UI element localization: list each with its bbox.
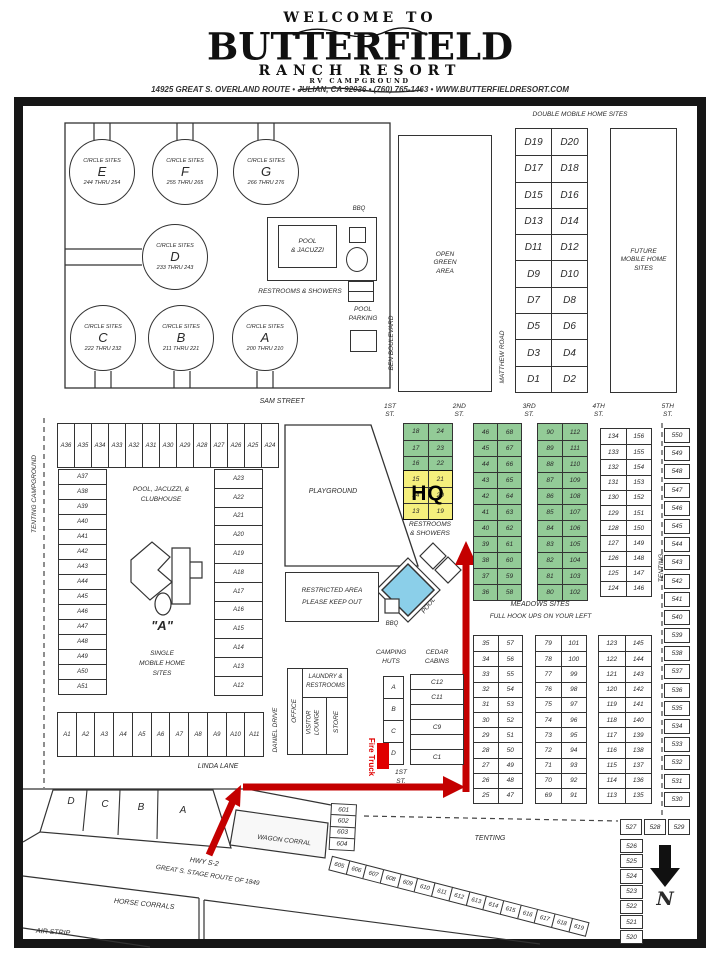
camping-hut: C [383, 720, 404, 743]
tent-site: 543 [664, 555, 690, 570]
tent-site: 549 [664, 446, 690, 461]
north-arrow-head [650, 868, 680, 887]
site-number: 147 [626, 567, 652, 581]
site-number: 126 [601, 552, 626, 566]
a-site: A9 [207, 712, 227, 757]
site-number: 94 [561, 743, 587, 757]
site-number: 123 [599, 636, 625, 651]
site-number: 145 [625, 636, 652, 651]
camping-hut: A [383, 676, 404, 699]
bbq-lower-label: BBQ [381, 620, 403, 629]
tent-site: 532 [664, 755, 690, 770]
d-site-cell: D1 [516, 367, 551, 392]
site-number: 127 [601, 536, 626, 550]
site-row: 3961 [474, 536, 521, 552]
daniel-drive-label: DANIEL DRIVE [271, 700, 281, 760]
pool-jacuzzi-label-2: & JACUZZI [291, 247, 324, 256]
a-site: A43 [58, 559, 107, 575]
site-number: 28 [474, 743, 498, 757]
d-site-cell: D8 [551, 288, 587, 313]
site-row: 3254 [474, 682, 522, 697]
site-number: 150 [626, 521, 652, 535]
site-number: 70 [536, 774, 561, 788]
d-site-cell: D4 [551, 340, 587, 365]
a-site: A32 [125, 423, 143, 468]
site-row: 2648 [474, 773, 522, 788]
d-site-cell: D2 [551, 367, 587, 392]
d-site-row: D9D10 [516, 260, 587, 286]
site-number: 88 [538, 457, 562, 472]
first-street-lower-label-1: 1ST [390, 769, 412, 778]
site-row: 3860 [474, 552, 521, 568]
tent-site: 521 [620, 915, 643, 929]
site-row: 133155 [601, 444, 651, 459]
site-number: 103 [562, 569, 587, 584]
site-number: 53 [498, 698, 523, 712]
camping-huts-label-2: HUTS [370, 658, 412, 667]
camping-huts-label-1: CAMPING [370, 649, 412, 658]
street-labels-row: 1STST.2NDST.3RDST.4THST.5THST. [384, 403, 674, 419]
site-row: 1723 [404, 440, 452, 456]
street-label: 3RDST. [523, 403, 536, 419]
site-number: 56 [498, 652, 523, 666]
site-row: 2850 [474, 742, 522, 757]
d-site-row: D19D20 [516, 129, 587, 155]
a-site: A13 [214, 657, 263, 677]
a-site: A42 [58, 544, 107, 560]
site-row: 7496 [536, 712, 586, 727]
pool-parking-lot [350, 330, 377, 352]
d-site-cell: D15 [516, 183, 551, 208]
site-row: 121143 [599, 666, 651, 681]
site-number: 40 [474, 521, 497, 536]
pool-parking-label-2: PARKING [346, 315, 380, 324]
site-number: 27 [474, 759, 498, 773]
site-number: 39 [474, 537, 497, 552]
site-number: 140 [625, 713, 652, 727]
site-number: 106 [562, 521, 587, 536]
site-number: 74 [536, 713, 561, 727]
site-number: 13 [404, 504, 428, 519]
campground-map: CIRCLE SITES E 244 THRU 254 CIRCLE SITES… [0, 0, 720, 960]
site-row: 130152 [601, 490, 651, 505]
a-site: A29 [176, 423, 194, 468]
d-site-row: D7D8 [516, 287, 587, 313]
tent-site: 522 [620, 900, 643, 914]
d-site-cell: D12 [551, 235, 587, 260]
site-number: 65 [497, 473, 521, 488]
site-number: 38 [474, 553, 497, 568]
site-number: 49 [498, 759, 523, 773]
a-site: A17 [214, 582, 263, 602]
hq-label: HQ [403, 482, 453, 506]
site-number: 107 [562, 505, 587, 520]
d-site-cell: D13 [516, 209, 551, 234]
circle-range: 244 THRU 254 [84, 180, 121, 186]
site-number: 61 [497, 537, 521, 552]
site-row: 129151 [601, 505, 651, 520]
site-number: 30 [474, 713, 498, 727]
site-row: 88110 [538, 456, 587, 472]
a-site: A38 [58, 484, 107, 500]
site-number: 46 [474, 424, 497, 440]
site-row: 85107 [538, 504, 587, 520]
future-line: SITES [634, 265, 653, 274]
circle-site-d: CIRCLE SITES D 233 THRU 243 [142, 224, 208, 290]
site-number: 60 [497, 553, 521, 568]
site-number: 75 [536, 698, 561, 712]
site-row: 4365 [474, 472, 521, 488]
cedar-cabin: C9 [410, 719, 464, 735]
pool-parking-stall [348, 291, 374, 302]
a-site: A4 [113, 712, 133, 757]
site-number: 55 [498, 667, 523, 681]
site-number: 135 [625, 789, 652, 803]
a-site: A12 [214, 676, 263, 696]
d-site-row: D13D14 [516, 208, 587, 234]
site-number: 79 [536, 636, 561, 651]
hq-green-section: 182417231622 [404, 424, 452, 471]
d-site-cell: D9 [516, 261, 551, 286]
tent-site: 536 [664, 683, 690, 698]
a-sites-left-column: A37A38A39A40A41A42A43A44A45A46A47A48A49A… [58, 470, 107, 695]
a-site: A30 [159, 423, 177, 468]
circle-letter: F [181, 165, 189, 179]
circle-site-e: CIRCLE SITES E 244 THRU 254 [69, 139, 135, 205]
street-label: 4THST. [593, 403, 605, 419]
site-row: 89111 [538, 440, 587, 456]
site-row: 113135 [599, 788, 651, 803]
site-number: 47 [498, 789, 523, 803]
fourth-street-sites-table: 1341561331551321541311531301521291511281… [600, 428, 652, 597]
site-number: 82 [538, 553, 562, 568]
site-row: 4567 [474, 440, 521, 456]
tent-site: 538 [664, 646, 690, 661]
fire-truck-label: Fire Truck [366, 732, 376, 782]
site-number: 97 [561, 698, 587, 712]
site-row: 1824 [404, 424, 452, 440]
tent-site: 540 [664, 610, 690, 625]
a-site: A25 [244, 423, 262, 468]
tent-site: 544 [664, 537, 690, 552]
d-site-row: D3D4 [516, 339, 587, 365]
site-number: 18 [404, 424, 428, 440]
a-site: A24 [261, 423, 279, 468]
d-site-row: D5D6 [516, 313, 587, 339]
site-number: 155 [626, 445, 652, 459]
site-row: 119141 [599, 697, 651, 712]
circle-range: 200 THRU 210 [247, 346, 284, 352]
circle-range: 233 THRU 243 [157, 265, 194, 271]
a-site: A41 [58, 529, 107, 545]
a-site: A1 [57, 712, 77, 757]
site-number: 108 [562, 489, 587, 504]
tent-site: 537 [664, 664, 690, 679]
a-site: A5 [132, 712, 152, 757]
cedar-cabins-column: C12C11C9C1 [410, 675, 464, 765]
site-row: 2951 [474, 727, 522, 742]
cedar-cabins-label-2: CABINS [415, 658, 459, 667]
corner-sites-column: 526525524523522521520 [620, 839, 643, 944]
site-number: 62 [497, 521, 521, 536]
site-number: 51 [498, 728, 523, 742]
site-number: 63 [497, 505, 521, 520]
site-number: 66 [497, 457, 521, 472]
open-green-line: GREEN [433, 259, 456, 268]
site-number: 41 [474, 505, 497, 520]
site-number: 152 [626, 491, 652, 505]
a-site: A6 [151, 712, 171, 757]
third-street-sites-table: 9011289111881108710986108851078410683105… [537, 423, 588, 601]
meadows-table-3: 1231451221441211431201421191411181401171… [598, 635, 652, 804]
pool-jacuzzi-building: POOL & JACUZZI [278, 225, 337, 268]
site-row: 118140 [599, 712, 651, 727]
site-row: 3759 [474, 568, 521, 584]
site-number: 32 [474, 683, 498, 697]
tent-site: 535 [664, 701, 690, 716]
tent-site: 524 [620, 869, 643, 883]
meadows-table-1: 3557345633553254315330522951285027492648… [473, 635, 523, 804]
cedar-cabins-label-1: CEDAR [415, 649, 459, 658]
a-site: A46 [58, 604, 107, 620]
site-row: 7698 [536, 682, 586, 697]
tent-site: 520 [620, 930, 643, 944]
tenting-sites-column: 5505495485475465455445435425415405395385… [664, 428, 690, 807]
a-site: A50 [58, 664, 107, 680]
a-site: A21 [214, 507, 263, 527]
site-number: 141 [625, 698, 652, 712]
site-row: 116138 [599, 742, 651, 757]
site-number: 100 [561, 652, 587, 666]
site-row: 2547 [474, 788, 522, 803]
site-row: 126148 [601, 551, 651, 566]
d-site-cell: D3 [516, 340, 551, 365]
tent-site: 539 [664, 628, 690, 643]
site-number: 31 [474, 698, 498, 712]
site-number: 58 [497, 585, 521, 600]
circle-site-b: CIRCLE SITES B 211 THRU 221 [148, 305, 214, 371]
playground-label: PLAYGROUND [300, 488, 366, 497]
site-row: 128150 [601, 520, 651, 535]
fire-truck-marker [377, 743, 389, 769]
site-row: 4163 [474, 504, 521, 520]
site-number: 156 [626, 429, 652, 444]
site-row: 114136 [599, 773, 651, 788]
a-site: A23 [214, 469, 263, 489]
tent-site: 547 [664, 483, 690, 498]
site-number: 33 [474, 667, 498, 681]
visitor-line: VISITOR [307, 711, 315, 735]
site-number: 68 [497, 424, 521, 440]
site-row: 4668 [474, 424, 521, 440]
a-site: A45 [58, 589, 107, 605]
tenting-bottom-label: TENTING [468, 835, 512, 844]
pool-jacuzzi-clubhouse-label-1: POOL, JACUZZI, & [107, 486, 215, 495]
circle-letter: A [261, 331, 270, 345]
site-number: 130 [601, 491, 626, 505]
pool-parking-label-1: POOL [346, 306, 380, 315]
site-row: 2749 [474, 758, 522, 773]
site-number: 148 [626, 552, 652, 566]
site-row: 120142 [599, 682, 651, 697]
site-row: 80102 [538, 584, 587, 600]
site-number: 131 [601, 476, 626, 490]
circle-range: 211 THRU 221 [163, 346, 199, 352]
site-row: 122144 [599, 651, 651, 666]
site-number: 87 [538, 473, 562, 488]
site-number: 84 [538, 521, 562, 536]
site-row: 78100 [536, 651, 586, 666]
site-row: 79101 [536, 636, 586, 651]
site-number: 89 [538, 441, 562, 456]
d-site-cell: D17 [516, 156, 551, 181]
wagon-site: 604 [329, 837, 356, 851]
site-row: 3456 [474, 651, 522, 666]
site-number: 37 [474, 569, 497, 584]
site-number: 81 [538, 569, 562, 584]
site-row: 124146 [601, 581, 651, 596]
entry-site-b: B [132, 804, 150, 813]
meadows-subtitle: FULL HOOK UPS ON YOUR LEFT [468, 613, 613, 622]
site-number: 119 [599, 698, 625, 712]
site-number: 22 [428, 457, 453, 472]
tent-site: 526 [620, 839, 643, 853]
d-site-row: D1D2 [516, 366, 587, 392]
site-row: 87109 [538, 472, 587, 488]
site-row: 84106 [538, 520, 587, 536]
pool-jacuzzi-clubhouse-label-2: CLUBHOUSE [107, 496, 215, 505]
site-row: 82104 [538, 552, 587, 568]
a-sites-right-column: A23A22A21A20A19A18A17A16A15A14A13A12 [214, 470, 263, 696]
future-mobile-home-area: FUTURE MOBILE HOME SITES [610, 128, 677, 393]
site-number: 121 [599, 667, 625, 681]
future-line: FUTURE [630, 248, 656, 257]
site-row: 6991 [536, 788, 586, 803]
site-number: 93 [561, 759, 587, 773]
site-number: 134 [601, 429, 626, 444]
spa-square [349, 227, 366, 243]
a-site: A15 [214, 619, 263, 639]
site-number: 34 [474, 652, 498, 666]
site-row: 132154 [601, 459, 651, 474]
site-row: 7597 [536, 697, 586, 712]
a-site: A16 [214, 601, 263, 621]
site-number: 111 [562, 441, 587, 456]
site-number: 85 [538, 505, 562, 520]
a-sites-top-row: A36A35A34A33A32A31A30A29A28A27A26A25A24 [58, 423, 279, 468]
site-number: 36 [474, 585, 497, 600]
a-block-desc-2: MOBILE HOME [125, 660, 199, 669]
site-row: 3355 [474, 666, 522, 681]
a-site: A51 [58, 679, 107, 695]
site-row: 134156 [601, 429, 651, 444]
site-number: 151 [626, 506, 652, 520]
tent-site: 548 [664, 464, 690, 479]
a-site: A22 [214, 488, 263, 508]
site-number: 92 [561, 774, 587, 788]
tent-site: 530 [664, 792, 690, 807]
site-row: 115137 [599, 758, 651, 773]
open-green-area: OPEN GREEN AREA [398, 135, 492, 392]
street-label: 1STST. [384, 403, 396, 419]
site-row: 7092 [536, 773, 586, 788]
office-label: OFFICE [290, 691, 300, 731]
site-number: 124 [601, 582, 626, 596]
a-site: A40 [58, 514, 107, 530]
bbq-upper-label: BBQ [348, 205, 370, 214]
site-row: 4264 [474, 488, 521, 504]
circle-letter: B [177, 331, 186, 345]
circle-range: 222 THRU 232 [85, 346, 122, 352]
restrooms-showers-upper-label: RESTROOMS & SHOWERS [250, 288, 350, 297]
site-number: 16 [404, 457, 428, 472]
site-number: 109 [562, 473, 587, 488]
site-number: 104 [562, 553, 587, 568]
tent-site: 542 [664, 574, 690, 589]
a-site: A19 [214, 544, 263, 564]
d-site-row: D11D12 [516, 234, 587, 260]
d-site-cell: D7 [516, 288, 551, 313]
site-number: 146 [626, 582, 652, 596]
site-row: 125147 [601, 566, 651, 581]
a-site: A8 [188, 712, 208, 757]
d-site-cell: D5 [516, 314, 551, 339]
site-number: 59 [497, 569, 521, 584]
site-number: 52 [498, 713, 523, 727]
camping-hut: B [383, 698, 404, 721]
entry-site-c: C [96, 801, 114, 810]
tent-site: 550 [664, 428, 690, 443]
a-site: A14 [214, 638, 263, 658]
cedar-cabin [410, 734, 464, 750]
site-number: 144 [625, 652, 652, 666]
visitor-line: LOUNGE [314, 710, 322, 735]
d-site-cell: D19 [516, 129, 551, 155]
site-number: 120 [599, 683, 625, 697]
site-row: 4466 [474, 456, 521, 472]
a-site: A11 [244, 712, 264, 757]
a-site: A7 [169, 712, 189, 757]
a-site: A20 [214, 525, 263, 545]
a-site: A33 [108, 423, 126, 468]
site-number: 117 [599, 728, 625, 742]
site-row: 7395 [536, 727, 586, 742]
site-row: 4062 [474, 520, 521, 536]
d-site-cell: D18 [551, 156, 587, 181]
site-number: 71 [536, 759, 561, 773]
cedar-cabin: C1 [410, 749, 464, 765]
a-site: A2 [76, 712, 96, 757]
open-green-line: AREA [436, 268, 454, 277]
tent-site: 545 [664, 519, 690, 534]
site-row: 3153 [474, 697, 522, 712]
site-number: 118 [599, 713, 625, 727]
d-site-cell: D6 [551, 314, 587, 339]
site-number: 102 [562, 585, 587, 600]
visitor-lounge-label: VISITOR LOUNGE [307, 700, 322, 746]
site-row: 7193 [536, 758, 586, 773]
site-row: 83105 [538, 536, 587, 552]
site-number: 129 [601, 506, 626, 520]
site-number: 67 [497, 441, 521, 456]
site-row: 3658 [474, 584, 521, 600]
site-row: 90112 [538, 424, 587, 440]
restrooms-showers-label-1: RESTROOMS [403, 521, 457, 530]
site-number: 86 [538, 489, 562, 504]
site-number: 142 [625, 683, 652, 697]
a-site: A34 [91, 423, 109, 468]
tenting-campground-label: TENTING CAMPGROUND [30, 442, 40, 546]
